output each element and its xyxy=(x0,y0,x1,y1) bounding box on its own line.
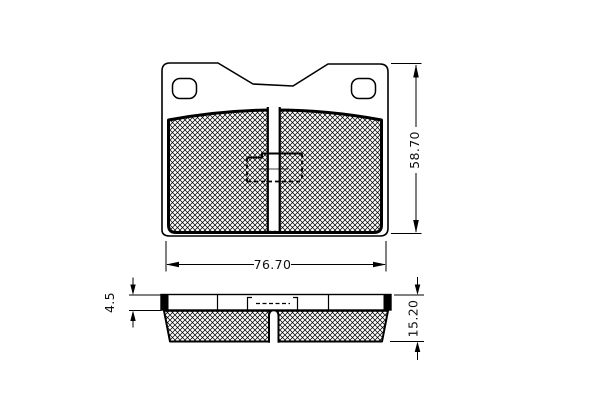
arrowhead-down xyxy=(415,285,421,296)
side-view xyxy=(161,295,391,343)
mounting-hole-left xyxy=(173,79,197,99)
wear-slot-gap xyxy=(268,103,279,231)
arrowhead-bottom xyxy=(413,220,419,233)
pad-height-label: 58.70 xyxy=(407,131,422,169)
drawing-canvas: 76.70 58.70 4.5 15.20 xyxy=(0,0,600,400)
dimension-pad-height: 58.70 xyxy=(391,64,422,234)
arrowhead-top xyxy=(413,65,419,78)
total-thickness-label: 15.20 xyxy=(406,300,421,338)
backplate-side xyxy=(161,295,391,311)
front-view xyxy=(162,63,388,236)
dimension-plate-thickness: 4.5 xyxy=(102,278,161,328)
arrowhead-right xyxy=(373,262,386,268)
arrowhead-left xyxy=(166,262,179,268)
plate-thickness-label: 4.5 xyxy=(102,292,117,313)
brake-pad-technical-drawing: 76.70 58.70 4.5 15.20 xyxy=(0,0,600,400)
dimension-pad-width: 76.70 xyxy=(166,241,386,272)
backplate-end-cap-left xyxy=(161,295,169,311)
pad-width-label: 76.70 xyxy=(254,257,292,272)
arrowhead-up xyxy=(130,311,135,322)
mounting-hole-right xyxy=(352,79,376,99)
arrowhead-up xyxy=(415,342,421,353)
wear-slot-side xyxy=(269,310,279,343)
dimension-total-thickness: 15.20 xyxy=(390,277,424,360)
arrowhead-down xyxy=(130,285,135,296)
backplate-end-cap-right xyxy=(384,295,392,311)
